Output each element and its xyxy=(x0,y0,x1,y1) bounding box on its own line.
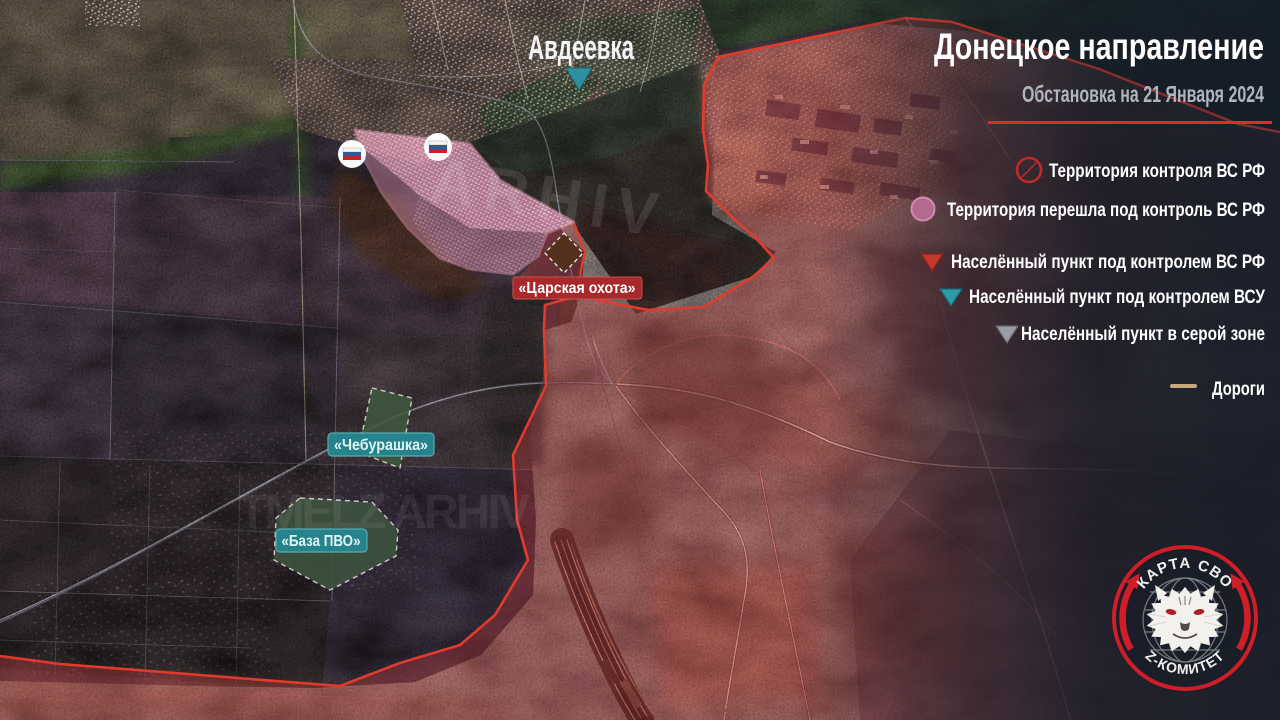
svg-text:Населённый пункт в серой зоне: Населённый пункт в серой зоне xyxy=(1021,323,1265,345)
svg-text:Населённый пункт под контролем: Населённый пункт под контролем ВСУ xyxy=(969,286,1266,308)
svg-text:Территория перешла под контрол: Территория перешла под контроль ВС РФ xyxy=(947,199,1265,221)
svg-text:«База ПВО»: «База ПВО» xyxy=(282,533,361,550)
svg-text:Населённый пункт под контролем: Населённый пункт под контролем ВС РФ xyxy=(951,251,1265,273)
svg-text:Дороги: Дороги xyxy=(1212,378,1265,400)
svg-text:Территория контроля ВС РФ: Территория контроля ВС РФ xyxy=(1049,160,1265,182)
svg-text:«Чебурашка»: «Чебурашка» xyxy=(334,437,428,454)
svg-text:Обстановка на 21 Января 2024: Обстановка на 21 Января 2024 xyxy=(1022,81,1264,107)
svg-text:Донецкое направление: Донецкое направление xyxy=(934,25,1264,67)
svg-text:«Царская охота»: «Царская охота» xyxy=(519,280,636,297)
svg-text:Авдеевка: Авдеевка xyxy=(528,29,635,67)
